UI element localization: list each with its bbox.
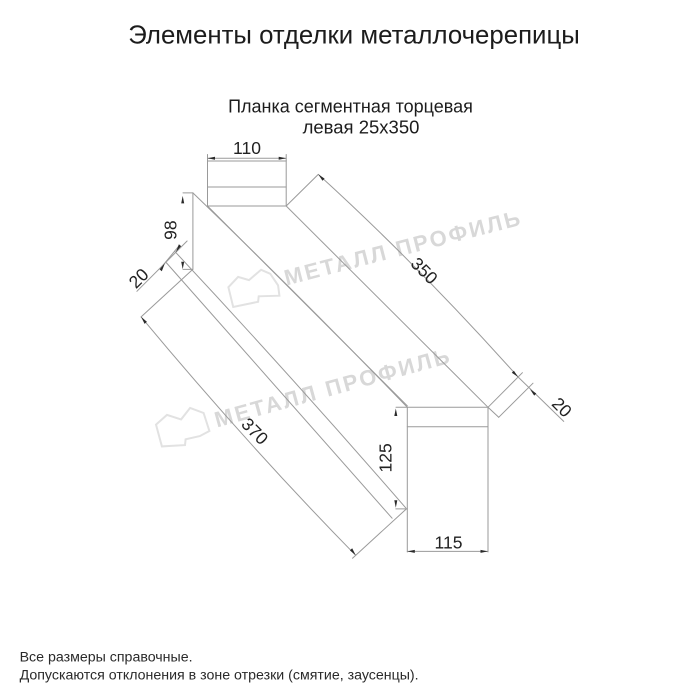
svg-text:Планка сегментная торцевая: Планка сегментная торцевая: [228, 97, 473, 117]
svg-text:Допускаются отклонения в зоне: Допускаются отклонения в зоне отрезки (с…: [20, 668, 419, 684]
svg-text:115: 115: [435, 532, 463, 552]
svg-text:Все размеры справочные.: Все размеры справочные.: [20, 650, 193, 666]
svg-text:Элементы отделки металлочерепи: Элементы отделки металлочерепицы: [128, 22, 580, 50]
svg-text:98: 98: [161, 220, 181, 239]
svg-text:110: 110: [233, 138, 261, 158]
svg-text:125: 125: [376, 443, 396, 472]
svg-text:левая 25х350: левая 25х350: [303, 117, 420, 138]
